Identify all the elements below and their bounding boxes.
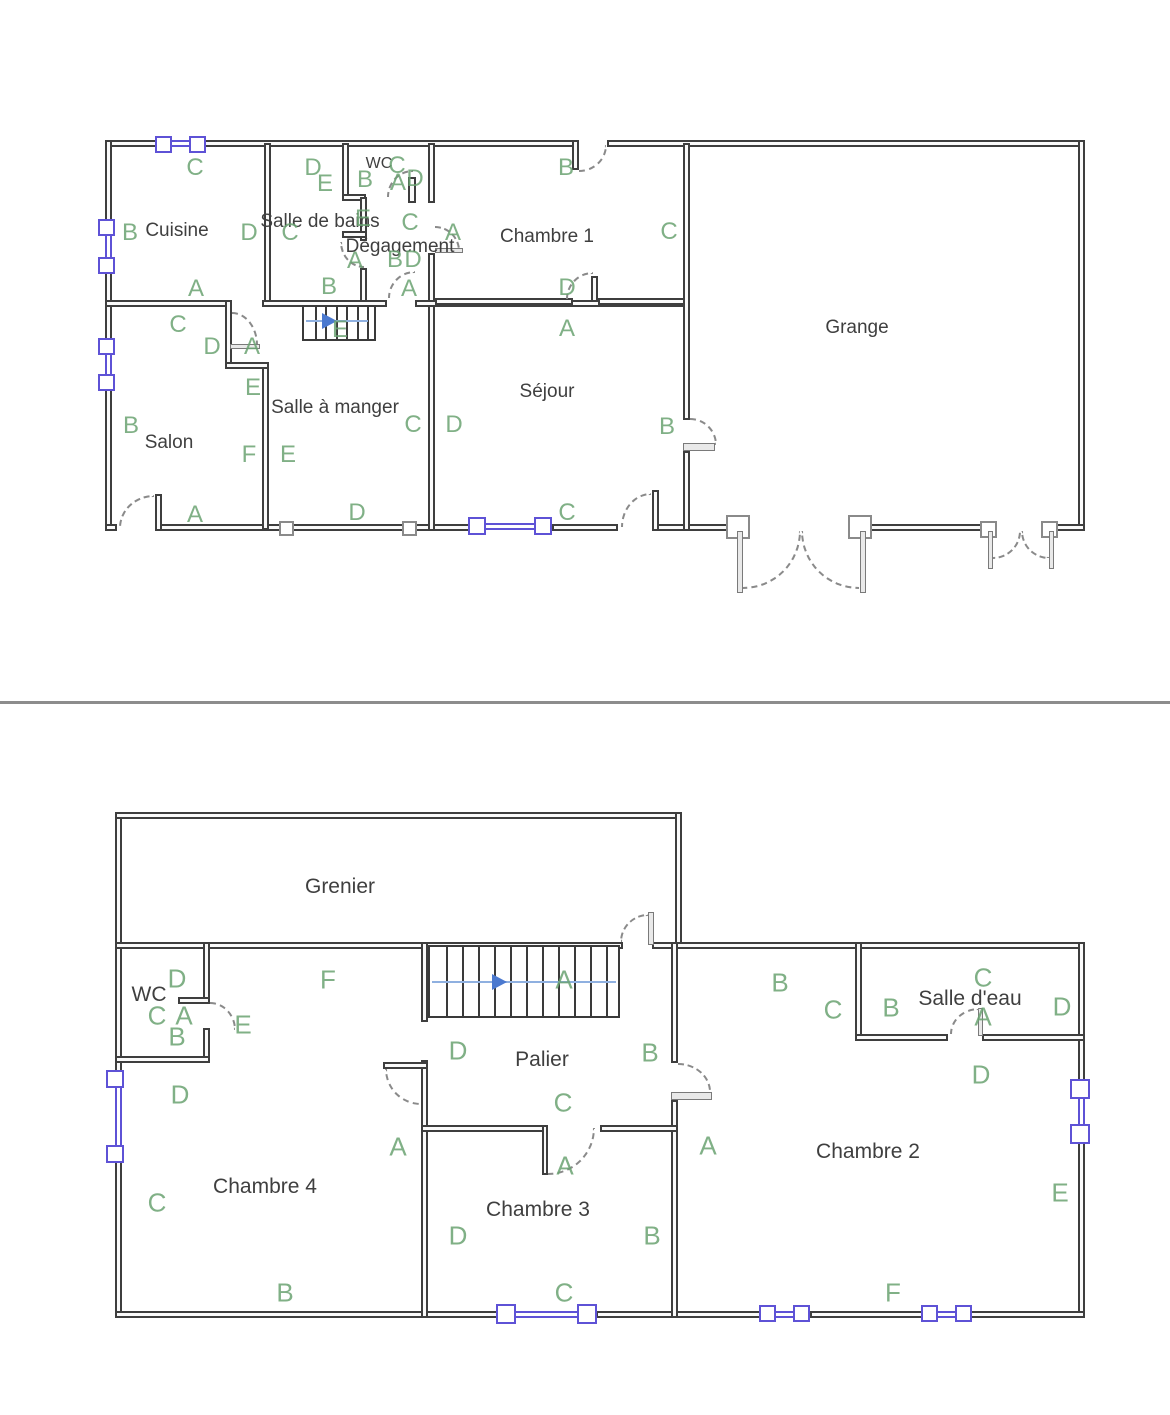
window-symbol [115,1088,122,1145]
wall-degagement-right [428,253,435,305]
door-swing-arc [690,418,717,445]
wall-wc-left [342,143,349,197]
plan-divider-line [0,701,1170,704]
wall-letter-label: D [168,964,187,995]
wall-letter-label: A [187,501,203,529]
window-endpost [1070,1079,1090,1099]
wc-wall-right [203,942,210,1003]
window-endpost [106,1145,124,1163]
wall-salon-manger [262,362,269,530]
door-leaf [860,531,866,593]
outer-wall-top [607,140,1085,147]
wall-stub [383,1062,428,1069]
door-leaf [1049,531,1054,569]
stair-tread [367,307,369,339]
wall-letter-label: D [972,1060,991,1091]
window-endpost [921,1305,938,1322]
wall-letter-label: B [641,1038,658,1069]
room-label-salon: Salon [145,432,194,454]
wc-wall-bottom [115,1056,210,1063]
wall-letter-label: D [203,333,220,361]
wall-letter-label: B [321,273,337,301]
window-endpost [534,517,552,535]
floor-plan-document: CuisineSalle de bainsWCDégagementChambre… [0,0,1170,1415]
door-swing-arc [678,1063,711,1092]
grenier-wall-right [675,812,682,949]
wall-letter-label: A [389,1132,406,1163]
wall-letter-label: E [1051,1178,1068,1209]
wall-letter-label: B [771,968,788,999]
wall-chambre4-chambre3 [421,1060,428,1318]
wall-letter-label: E [317,170,333,198]
door-swing-arc [579,145,607,172]
room-label-chambre-1: Chambre 1 [500,226,594,248]
wall-stub [225,300,232,367]
window-symbol [776,1311,794,1318]
wall-chambre1-bottom [598,298,687,305]
wall-letter-label: A [390,169,406,197]
window-endpost [98,257,115,274]
window-symbol [938,1311,956,1318]
wall-letter-label: D [449,1036,468,1067]
room-label-salle-d-eau: Salle d'eau [918,987,1021,1011]
wall-letter-label: D [449,1221,468,1252]
outer-wall-bottom [105,524,117,531]
wall-letter-label: C [660,218,677,246]
wall-letter-label: B [882,993,899,1024]
window-endpost [98,374,115,391]
outer-wall-bottom [115,1311,498,1318]
wall-stub [225,362,269,369]
wall-opening-box [279,521,294,536]
room-label-chambre-2: Chambre 2 [816,1140,920,1164]
wall-post [652,490,659,531]
wall-chambre3-chambre2 [671,1100,678,1318]
window-endpost [189,136,206,153]
wall-letter-label: B [643,1221,660,1252]
wall-manger-sejour [428,305,435,531]
wall-letter-label: C [169,311,186,339]
wall-letter-label: C [148,1001,167,1032]
wall-letter-label: D [445,411,462,439]
wall-letter-label: C [281,219,298,247]
grenier-wall-top [115,812,682,819]
wall-letter-label: C [148,1188,167,1219]
door-swing-arc [621,493,651,527]
wall-letter-label: B [168,1022,185,1053]
door-leaf [648,912,654,945]
wall-opening-box [402,521,417,536]
wall-degagement-right [428,143,435,203]
wall-letter-label: D [1053,992,1072,1023]
wall-letter-label: D [348,499,365,527]
wall-letter-label: F [320,965,336,996]
wall-mid-horizontal [105,300,227,307]
door-leaf [671,1092,712,1100]
wall-letter-label: A [445,219,461,247]
window-endpost [793,1305,810,1322]
wall-chambre1-bottom [435,298,573,305]
wall-letter-label: C [404,411,421,439]
stair-direction-line [432,981,616,983]
window-endpost [955,1305,972,1322]
wall-mid-horizontal [652,942,1085,949]
wall-letter-label: B [123,412,139,440]
room-label-s-jour: Séjour [520,381,575,403]
wall-letter-label: A [401,275,417,303]
wall-letter-label: F [242,441,257,469]
door-swing-arc [993,531,1021,559]
outer-wall-right [1078,140,1085,531]
wall-letter-label: A [556,1151,573,1182]
door-swing-arc [1021,531,1049,559]
wall-letter-label: C [186,154,203,182]
wall-letter-label: F [885,1278,901,1309]
window-endpost [98,338,115,355]
window-endpost [1070,1124,1090,1144]
wall-letter-label: A [347,247,363,275]
wall-letter-label: B [122,219,138,247]
room-label-chambre-3: Chambre 3 [486,1198,590,1222]
outer-wall-bottom [596,1311,763,1318]
door-swing-arc [119,495,154,528]
stairwell-wall-left [421,942,428,1022]
wall-letter-label: B [659,413,675,441]
palier-wall-right [671,942,678,1063]
wall-letter-label: D [171,1080,190,1111]
wall-letter-label: A [699,1131,716,1162]
wall-letter-label: E [245,374,261,402]
wall-grange-left [683,451,690,531]
wall-letter-label: C [824,995,843,1026]
wall-letter-label: B [276,1278,293,1309]
wall-letter-label: A [559,315,575,343]
window-symbol [516,1311,577,1318]
wall-letter-label: C [974,963,993,994]
stair-tread [357,307,359,339]
room-label-palier: Palier [515,1048,569,1072]
window-endpost [468,517,486,535]
door-swing-arc [385,1069,421,1105]
window-endpost [496,1304,516,1324]
wall-letter-label: C [558,499,575,527]
wall-letter-label: A [974,1002,991,1033]
outer-wall-left [115,812,122,1318]
wall-letter-label: A [244,333,260,361]
room-label-salle-manger: Salle à manger [271,397,399,419]
door-swing-arc [620,914,648,942]
chambre3-wall-top [421,1125,545,1132]
outer-wall-bottom [970,1311,1085,1318]
outer-wall-left [105,140,112,531]
wall-letter-label: D [240,219,257,247]
outer-wall-bottom [863,524,990,531]
wall-letter-label: A [555,965,572,996]
wall-grange-left [683,143,690,420]
wall-letter-label: C [401,209,418,237]
salle-eau-wall-left [855,942,862,1041]
chambre3-wall-top [600,1125,678,1132]
window-endpost [155,136,172,153]
wall-letter-label: D [558,274,575,302]
salle-eau-wall-bottom [855,1034,948,1041]
wall-post [155,494,162,531]
wall-letter-label: C [555,1278,574,1309]
door-swing-arc [801,531,859,589]
wall-letter-label: E [234,1010,251,1041]
window-endpost [759,1305,776,1322]
wall-letter-label: A [188,275,204,303]
window-symbol [478,523,542,530]
wall-letter-label: B [558,154,574,182]
wall-letter-label: E [280,441,296,469]
wall-letter-label: D [406,165,423,193]
stair-direction-arrow-icon [492,974,507,990]
room-label-grenier: Grenier [305,875,375,899]
door-swing-arc [743,531,801,589]
wall-letter-label: D [404,246,421,274]
room-label-chambre-4: Chambre 4 [213,1175,317,1199]
window-endpost [98,219,115,236]
wall-letter-label: B [387,246,403,274]
stair-tread [315,307,317,339]
wall-letter-label: E [355,205,371,233]
wall-letter-label: B [357,166,373,194]
wall-letter-label: C [554,1088,573,1119]
window-endpost [106,1070,124,1088]
room-label-grange: Grange [825,317,888,339]
door-swing-arc [210,1002,236,1030]
salle-eau-wall-bottom [982,1034,1085,1041]
room-label-cuisine: Cuisine [145,220,208,242]
wall-letter-label: E [332,316,348,344]
outer-wall-bottom [810,1311,925,1318]
window-endpost [577,1304,597,1324]
window-symbol [1078,1099,1085,1126]
